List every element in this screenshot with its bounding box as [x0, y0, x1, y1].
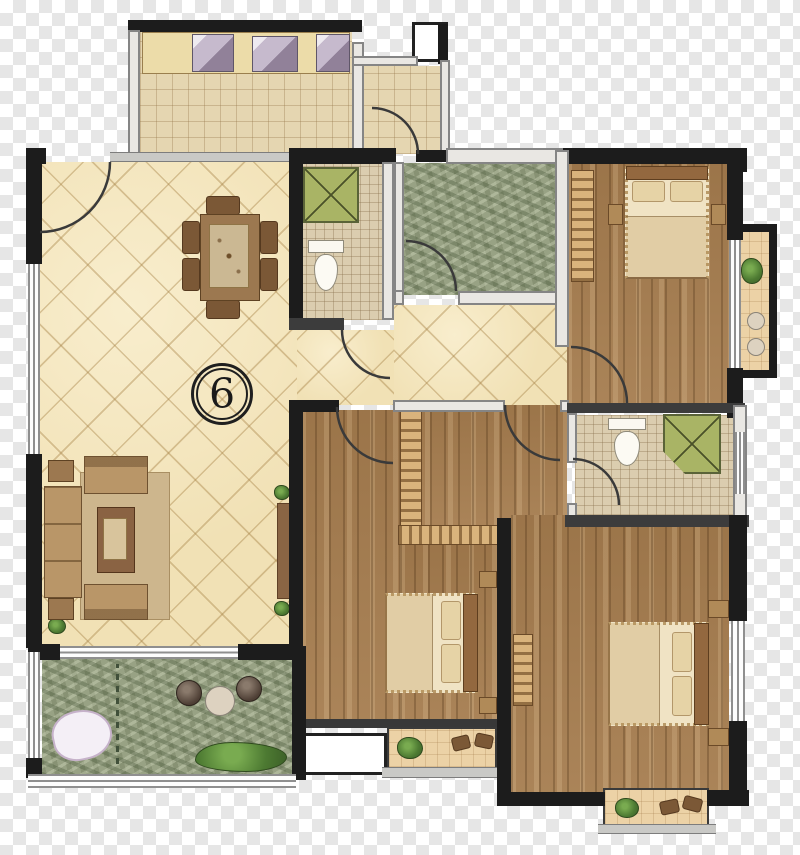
door-arc-entry [40, 162, 110, 232]
door-arc-ensuite [573, 459, 619, 505]
door-arc-shared-bathroom [342, 330, 390, 378]
door-arc-bedroom-top-right [571, 347, 627, 403]
door-arc-porch [372, 108, 418, 154]
door-arc-multipurpose-room [406, 241, 456, 291]
door-arc-bedroom-middle [337, 407, 393, 463]
door-arc-master-corridor [505, 405, 560, 460]
transparency-checkerboard: { "unit_label": "6", "plan": { "type": "… [0, 0, 800, 855]
floor-plan-image: 6 [0, 0, 800, 855]
door-swing-arcs [0, 0, 800, 855]
